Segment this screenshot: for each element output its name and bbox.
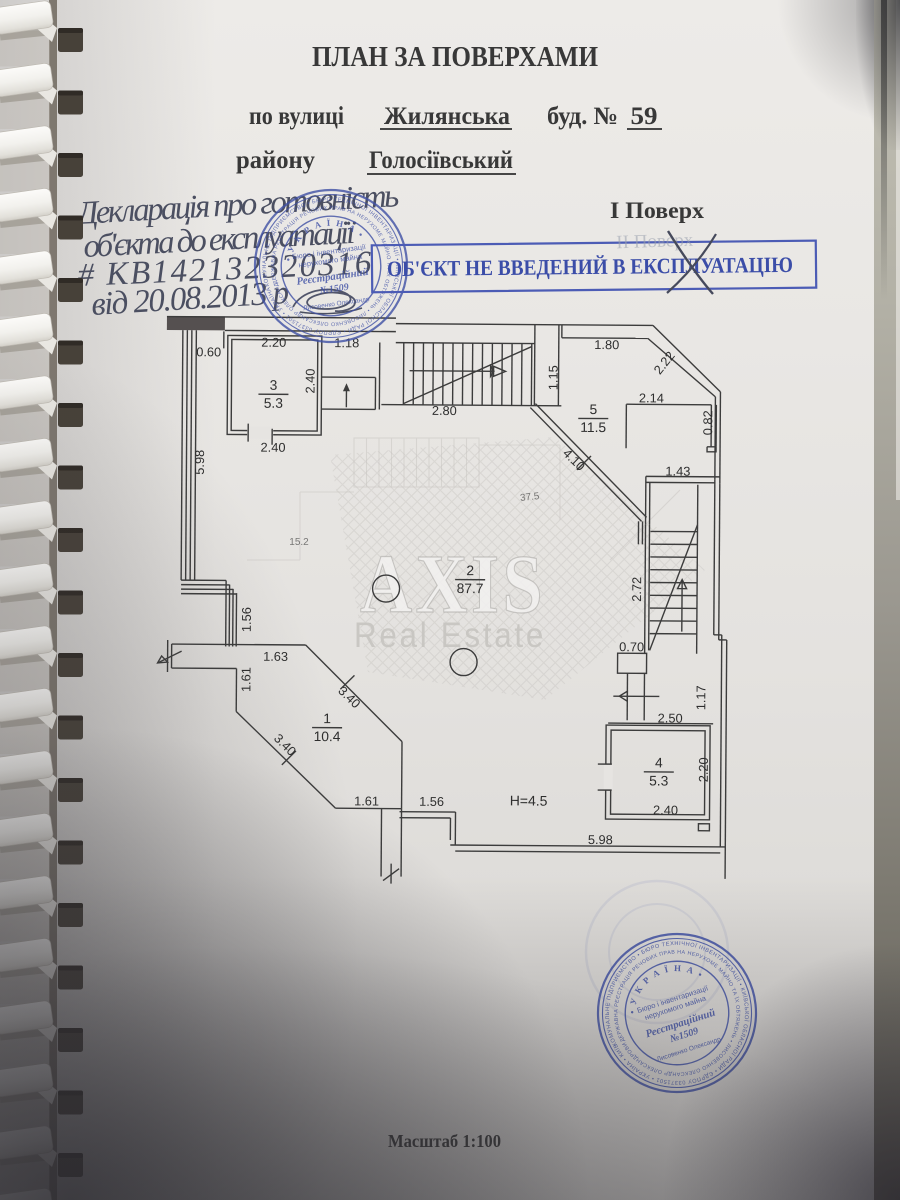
svg-text:2.22: 2.22 xyxy=(650,348,677,377)
svg-text:3: 3 xyxy=(270,378,278,393)
svg-text:І Поверх: І Поверх xyxy=(610,198,705,223)
svg-text:1: 1 xyxy=(323,711,331,726)
svg-text:Масштаб 1:100: Масштаб 1:100 xyxy=(388,1131,501,1151)
svg-text:5: 5 xyxy=(589,402,597,417)
svg-text:5.98: 5.98 xyxy=(588,832,613,847)
svg-text:15.2: 15.2 xyxy=(289,537,309,548)
svg-text:2.40: 2.40 xyxy=(261,440,286,455)
svg-text:2.40: 2.40 xyxy=(653,802,678,817)
svg-text:Голосіївський: Голосіївський xyxy=(369,147,513,174)
svg-text:2.80: 2.80 xyxy=(432,403,457,418)
svg-text:буд. №: буд. № xyxy=(547,103,618,130)
svg-text:2.20: 2.20 xyxy=(696,757,711,782)
svg-text:1.15: 1.15 xyxy=(545,365,560,390)
svg-text:5.3: 5.3 xyxy=(649,773,669,788)
svg-text:2.72: 2.72 xyxy=(629,577,644,602)
svg-text:1.56: 1.56 xyxy=(419,794,444,809)
svg-text:1.61: 1.61 xyxy=(354,793,379,808)
svg-text:87.7: 87.7 xyxy=(457,581,484,596)
svg-text:1.43: 1.43 xyxy=(665,464,690,479)
svg-text:3.40: 3.40 xyxy=(271,731,299,759)
svg-text:2: 2 xyxy=(466,563,474,578)
svg-text:0.60: 0.60 xyxy=(196,344,221,359)
svg-text:2.50: 2.50 xyxy=(658,710,683,725)
svg-text:2.20: 2.20 xyxy=(261,335,286,350)
svg-text:5.3: 5.3 xyxy=(264,396,284,411)
svg-text:10.4: 10.4 xyxy=(314,729,341,744)
svg-text:1.80: 1.80 xyxy=(594,337,619,352)
svg-text:37.5: 37.5 xyxy=(519,491,540,504)
svg-text:0.70: 0.70 xyxy=(619,639,644,654)
svg-text:1.17: 1.17 xyxy=(693,685,708,710)
svg-text:Real Estate: Real Estate xyxy=(354,616,546,655)
svg-text:Жилянська: Жилянська xyxy=(384,103,510,130)
svg-text:по вулиці: по вулиці xyxy=(249,103,344,130)
svg-text:5.98: 5.98 xyxy=(192,450,207,475)
svg-text:ІІ Поверх: ІІ Поверх xyxy=(616,230,694,254)
svg-text:11.5: 11.5 xyxy=(580,420,606,435)
svg-text:3.40: 3.40 xyxy=(335,683,363,711)
svg-text:району: району xyxy=(236,147,315,174)
svg-text:0.82: 0.82 xyxy=(700,410,715,435)
svg-text:ОБ'ЄКТ НЕ ВВЕДЕНИЙ В ЕКСПЛУАТ: ОБ'ЄКТ НЕ ВВЕДЕНИЙ В ЕКСПЛУАТАЦІЮ xyxy=(387,252,793,281)
svg-text:2.40: 2.40 xyxy=(302,369,317,394)
svg-text:1.56: 1.56 xyxy=(239,607,254,632)
svg-text:H=4.5: H=4.5 xyxy=(510,792,548,808)
svg-text:2.14: 2.14 xyxy=(639,390,664,405)
svg-text:1.61: 1.61 xyxy=(238,667,253,692)
svg-text:4: 4 xyxy=(655,755,663,770)
svg-text:59: 59 xyxy=(631,103,658,130)
svg-text:Лисовенко Олександр: Лисовенко Олександр xyxy=(303,296,371,312)
svg-text:1.63: 1.63 xyxy=(263,649,288,664)
svg-text:ПЛАН ЗА ПОВЕРХАМИ: ПЛАН ЗА ПОВЕРХАМИ xyxy=(312,41,598,73)
